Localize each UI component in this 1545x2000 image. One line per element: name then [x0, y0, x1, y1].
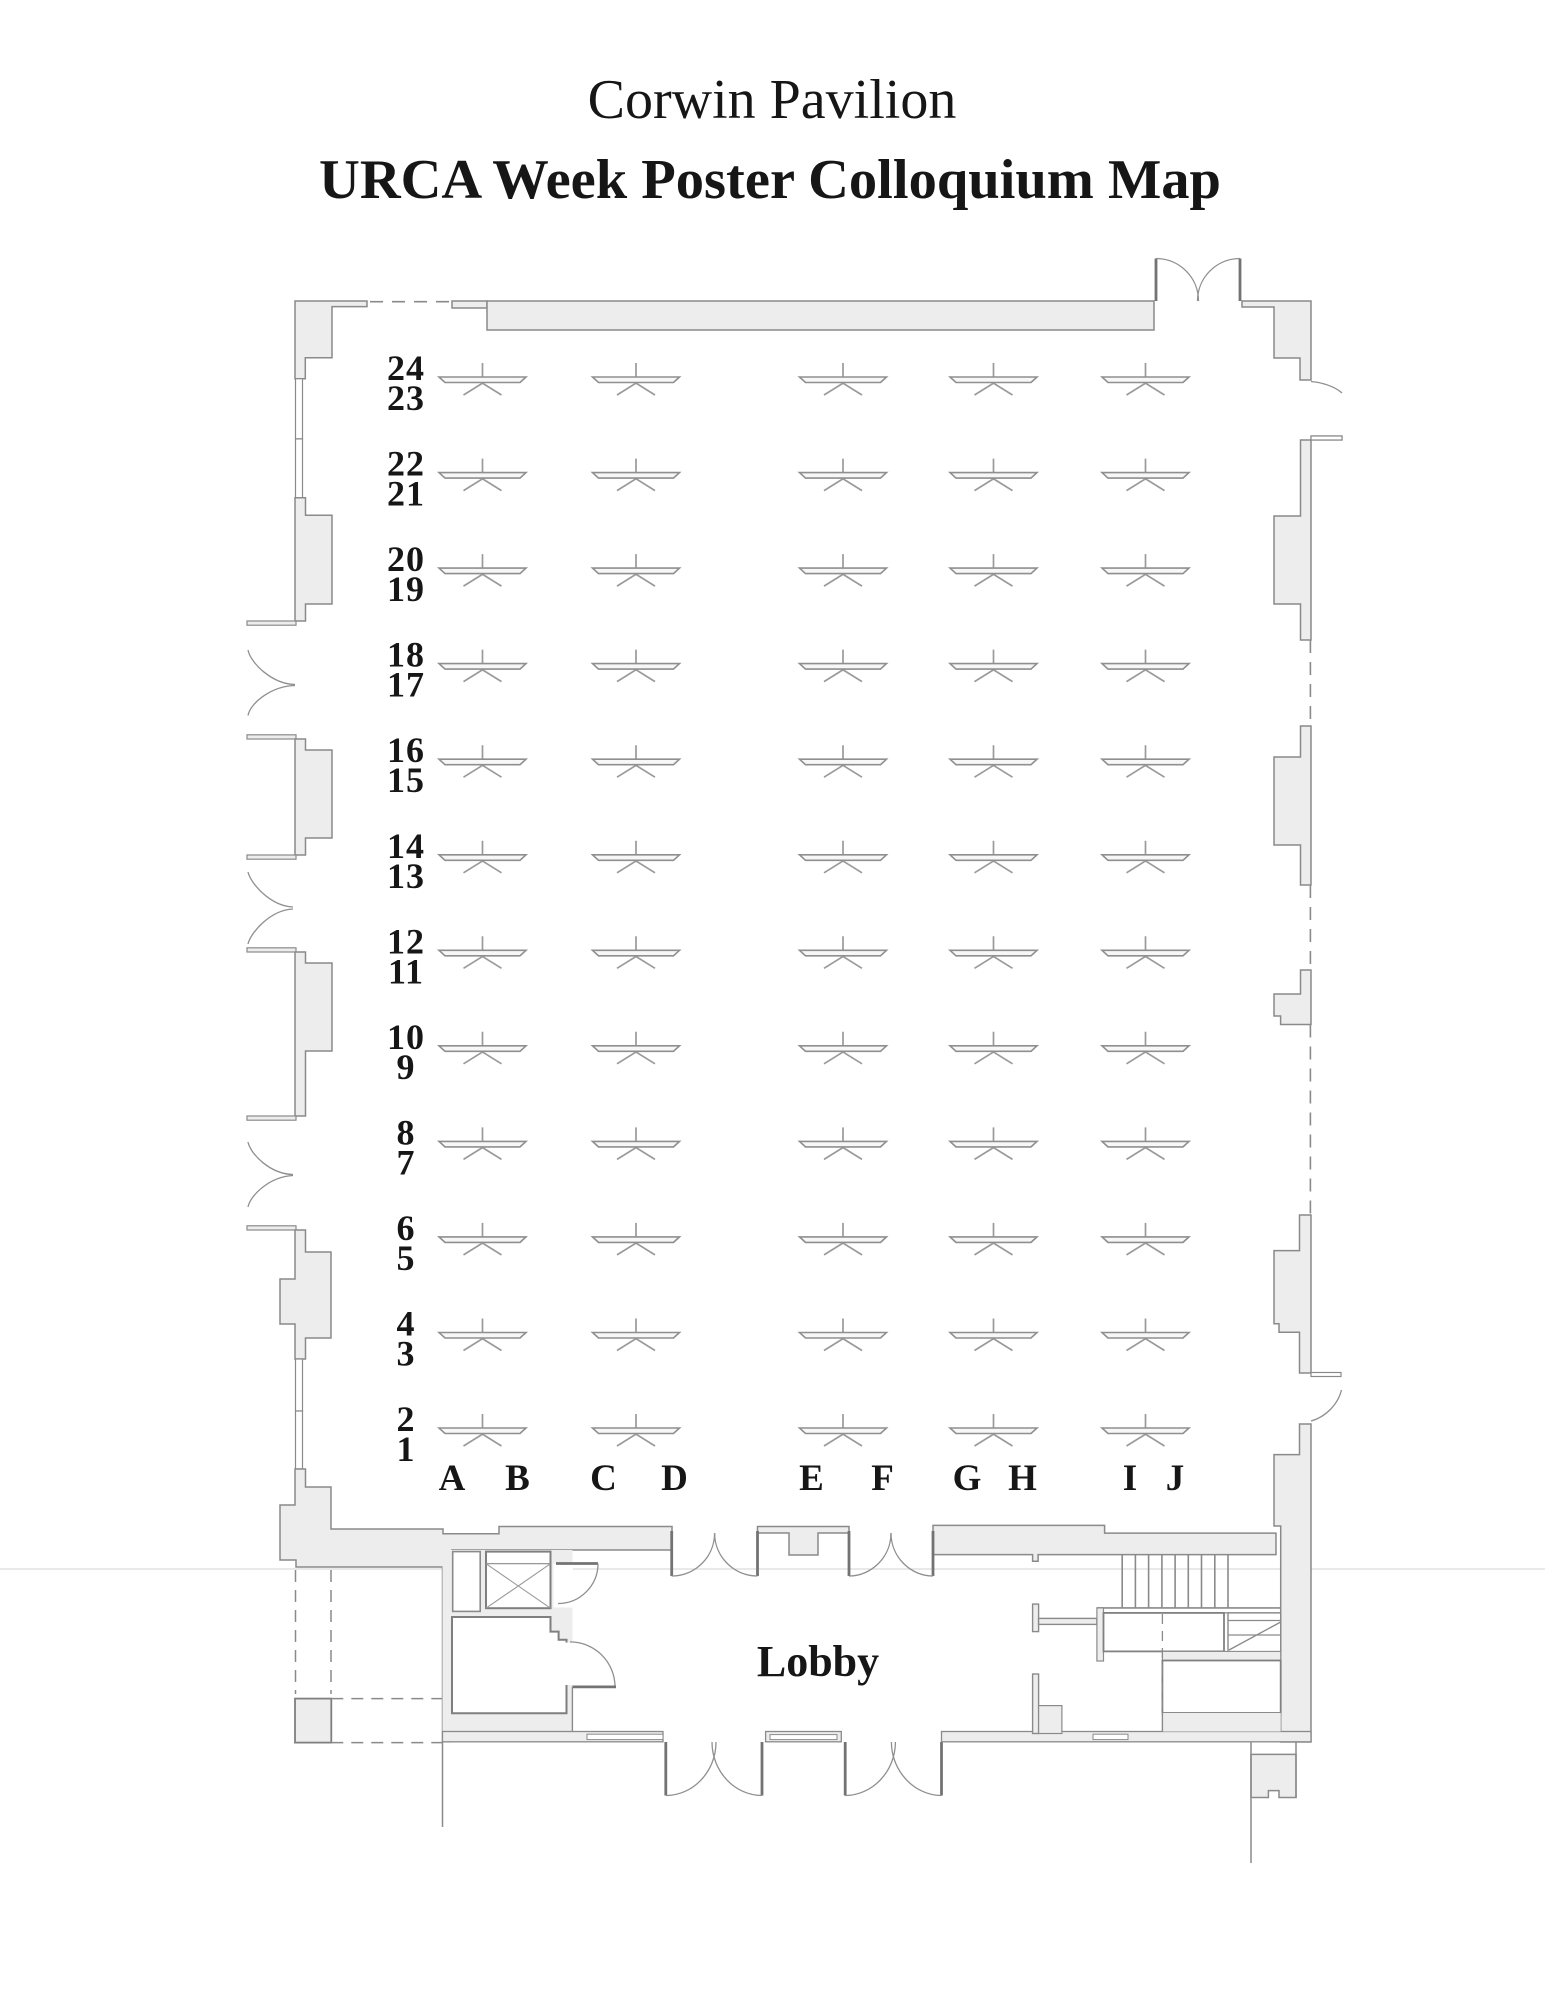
svg-text:11: 11 [388, 951, 424, 991]
svg-text:E: E [799, 1458, 824, 1499]
svg-text:Corwin Pavilion: Corwin Pavilion [588, 69, 957, 131]
svg-text:Lobby: Lobby [757, 1637, 879, 1686]
svg-text:1: 1 [397, 1429, 416, 1469]
svg-text:F: F [871, 1458, 894, 1499]
svg-text:7: 7 [397, 1142, 416, 1182]
svg-text:URCA Week Poster Colloquium Ma: URCA Week Poster Colloquium Map [319, 149, 1221, 211]
svg-text:9: 9 [397, 1047, 416, 1087]
svg-text:3: 3 [397, 1334, 416, 1374]
svg-text:H: H [1008, 1458, 1037, 1499]
svg-text:C: C [590, 1458, 617, 1499]
svg-text:5: 5 [397, 1238, 416, 1278]
svg-text:21: 21 [387, 474, 425, 514]
svg-text:I: I [1123, 1458, 1137, 1499]
svg-text:19: 19 [387, 569, 425, 609]
svg-text:G: G [953, 1458, 982, 1499]
svg-text:B: B [505, 1458, 530, 1499]
svg-text:15: 15 [387, 760, 425, 800]
svg-text:J: J [1166, 1458, 1185, 1499]
svg-text:D: D [661, 1458, 688, 1499]
svg-text:13: 13 [387, 856, 425, 896]
svg-text:17: 17 [387, 665, 425, 705]
svg-text:23: 23 [387, 378, 425, 418]
svg-text:A: A [439, 1458, 466, 1499]
